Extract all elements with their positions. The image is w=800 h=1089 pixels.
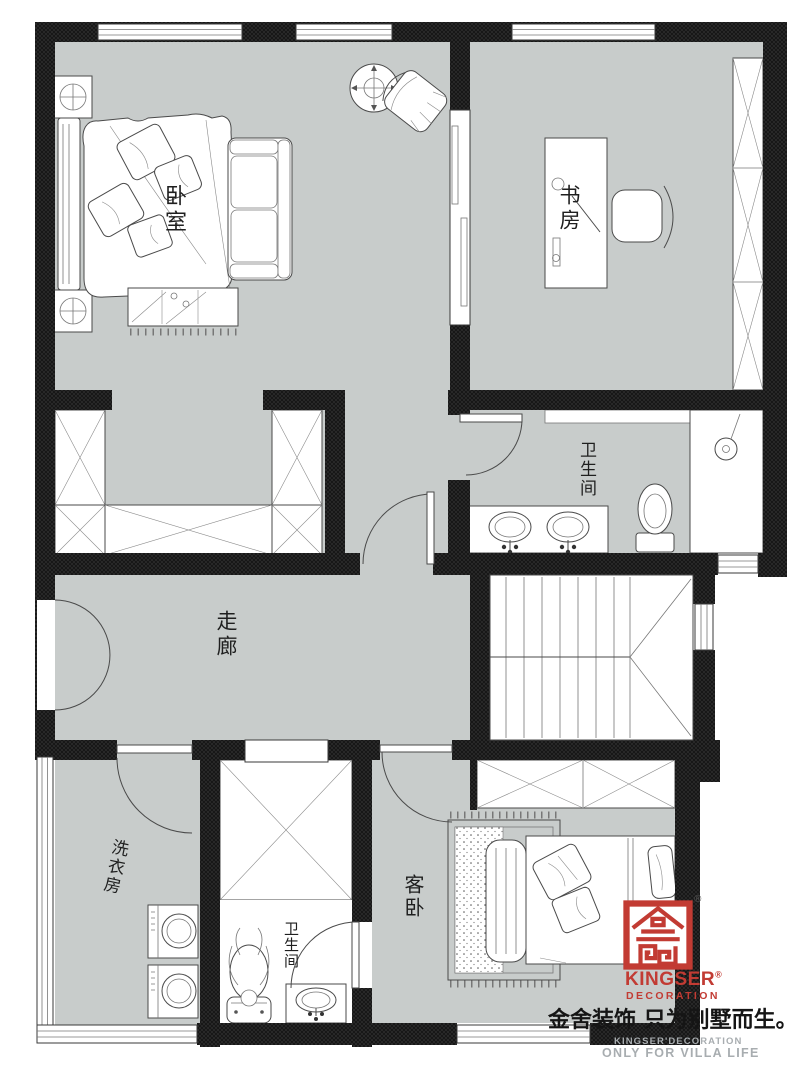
window <box>37 1025 197 1043</box>
watermark-tagline: ONLY FOR VILLA LIFE <box>602 1046 760 1060</box>
window <box>718 555 758 573</box>
bathroom-door-gap <box>448 415 470 480</box>
room-label-corridor: 走廊 <box>215 610 236 660</box>
double-vanity <box>468 506 608 554</box>
closet-opening <box>112 390 263 410</box>
window <box>98 24 242 40</box>
nightstand <box>54 76 92 118</box>
window <box>695 604 713 650</box>
brand-registered-mark: ® <box>715 970 722 980</box>
shower-area <box>690 410 763 553</box>
bedroom-sofa <box>228 138 292 280</box>
bay-window <box>37 757 53 1025</box>
toilet <box>636 484 674 552</box>
washing-machine <box>148 965 198 1018</box>
shower-box-top <box>245 740 328 762</box>
bathroom-shelf <box>545 410 690 423</box>
window <box>296 24 392 40</box>
nightstand <box>54 290 92 332</box>
pillow <box>647 845 676 899</box>
washing-machine <box>148 905 198 958</box>
center-utility <box>220 760 352 1023</box>
room-label-small-bathroom: 卫生间 <box>283 921 298 969</box>
hall-door-gap <box>360 553 433 575</box>
bed-end-bench <box>128 288 238 332</box>
window <box>512 24 655 40</box>
room-label-master-bedroom: 卧室 <box>162 184 184 236</box>
room-label-guest-bedroom: 客卧 <box>403 874 423 920</box>
floor-plan-canvas: 卧室 书房 卫生间 走廊 洗衣房 卫生间 客卧 ® KINGSER® DECOR… <box>0 0 800 1089</box>
bookcase <box>733 58 763 390</box>
guest-wardrobe <box>477 760 675 808</box>
brand-name: KINGSER® <box>625 969 722 991</box>
brand-slogan: 金舍装饰 只为别墅而生。 <box>548 1002 798 1034</box>
room-label-master-bathroom: 卫生间 <box>577 441 594 498</box>
small-bath-sink <box>286 984 346 1023</box>
sliding-door <box>450 110 470 325</box>
brand-name-text: KINGSER <box>625 969 715 990</box>
brand-division: DECORATION <box>626 990 720 1002</box>
kingser-emblem-icon <box>623 899 693 971</box>
room-label-study: 书房 <box>558 184 579 234</box>
registered-mark: ® <box>694 894 701 905</box>
master-bed <box>58 114 235 297</box>
corridor-floor <box>55 575 470 740</box>
staircase <box>490 575 693 740</box>
